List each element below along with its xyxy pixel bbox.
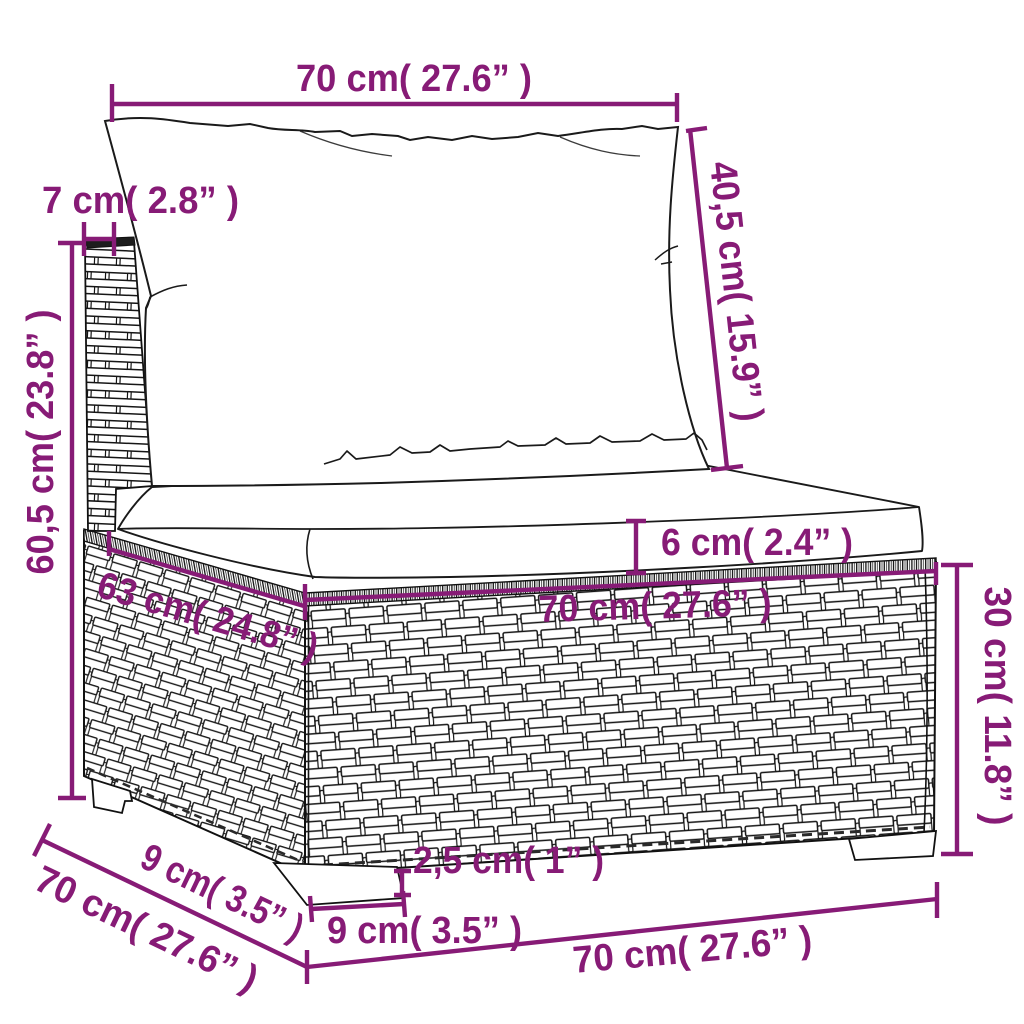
svg-text:2,5 cm( 1” ): 2,5 cm( 1” )	[413, 840, 604, 882]
svg-text:9 cm( 3.5” ): 9 cm( 3.5” )	[327, 910, 522, 952]
svg-text:30 cm( 11.8” ): 30 cm( 11.8” )	[976, 587, 1018, 826]
svg-text:70 cm( 27.6” ): 70 cm( 27.6” )	[538, 582, 772, 631]
svg-text:7 cm( 2.8” ): 7 cm( 2.8” )	[42, 180, 239, 222]
svg-text:60,5 cm( 23.8” ): 60,5 cm( 23.8” )	[20, 310, 62, 575]
svg-text:6 cm( 2.4” ): 6 cm( 2.4” )	[661, 522, 853, 564]
svg-text:70 cm( 27.6” ): 70 cm( 27.6” )	[296, 58, 532, 100]
